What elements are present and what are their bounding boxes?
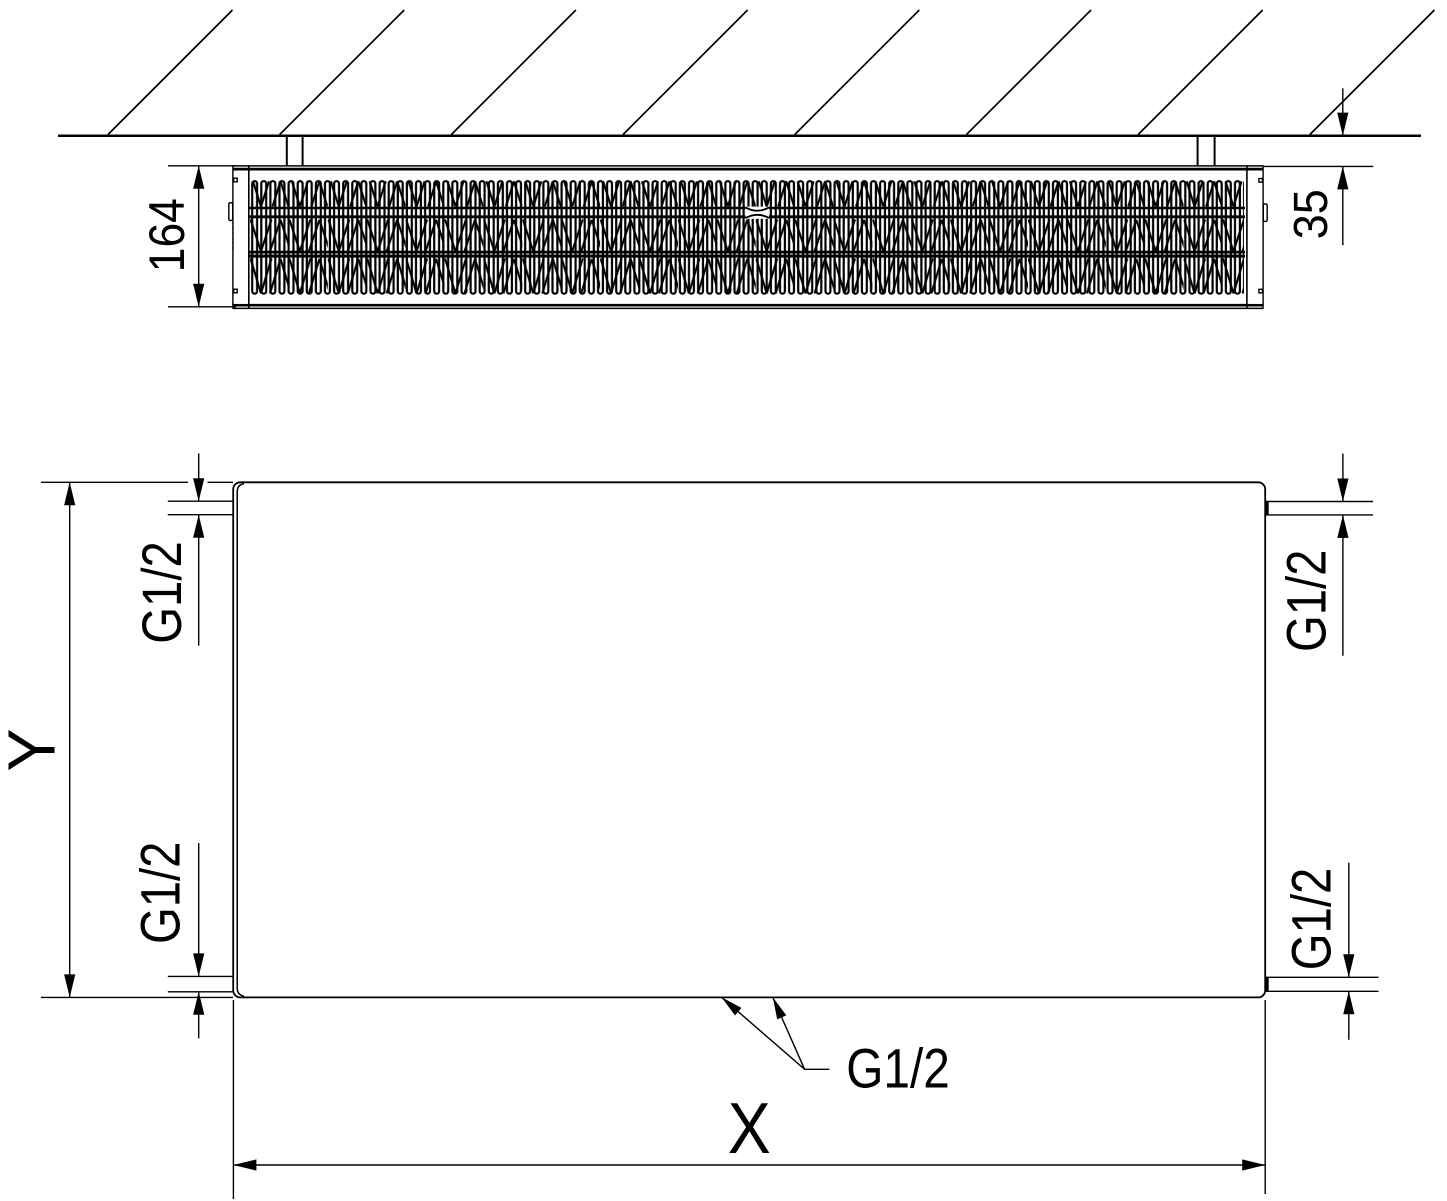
svg-text:G1/2: G1/2 <box>130 541 193 644</box>
svg-text:G1/2: G1/2 <box>129 842 192 945</box>
svg-text:Y: Y <box>0 729 69 772</box>
svg-text:G1/2: G1/2 <box>1280 868 1343 971</box>
svg-text:G1/2: G1/2 <box>1275 550 1338 653</box>
svg-text:35: 35 <box>1285 189 1338 239</box>
svg-text:164: 164 <box>139 198 195 272</box>
svg-text:G1/2: G1/2 <box>846 1037 950 1100</box>
svg-text:X: X <box>728 1089 771 1169</box>
